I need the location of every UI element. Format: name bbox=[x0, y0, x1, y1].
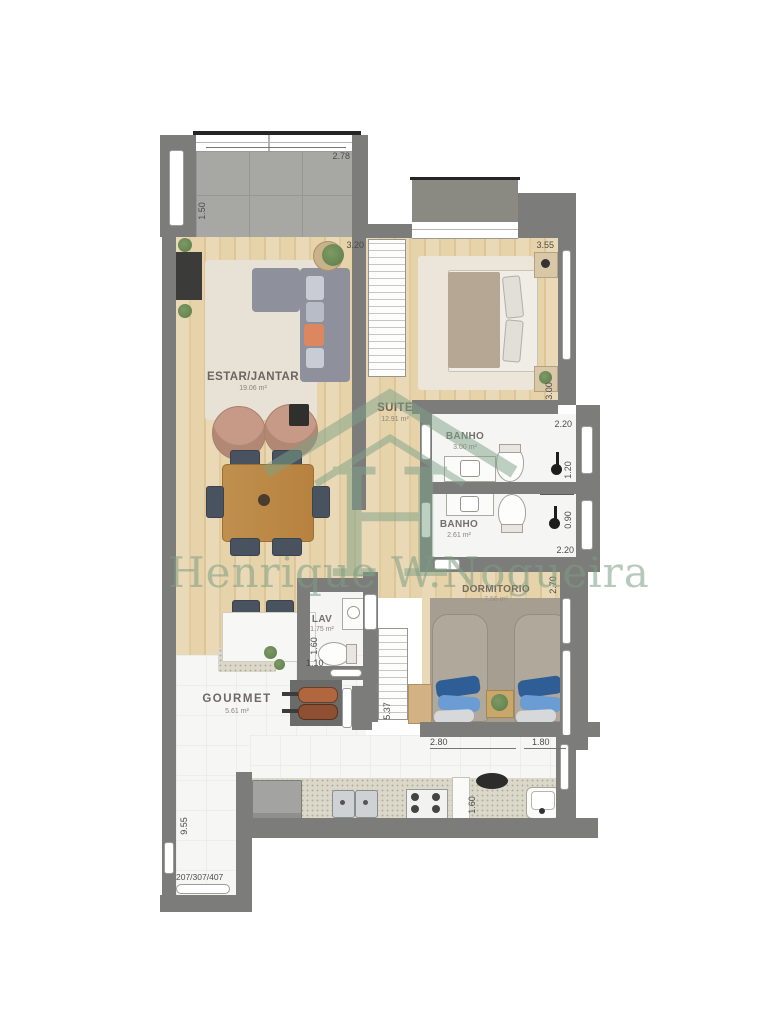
wall-living-suite bbox=[352, 237, 366, 510]
shower-icon bbox=[549, 518, 560, 529]
closet-panel bbox=[408, 684, 432, 724]
wall bbox=[518, 193, 558, 238]
wall-bottom-left bbox=[160, 895, 252, 912]
side-table bbox=[289, 404, 309, 426]
room-label-bath2: BANHO bbox=[426, 519, 492, 530]
room-area-lav: 1.75 m² bbox=[300, 626, 344, 633]
dining-chair bbox=[312, 486, 330, 518]
wall bbox=[352, 135, 368, 237]
window-mullion bbox=[412, 229, 518, 230]
dim-line bbox=[524, 748, 566, 749]
kitchen-window bbox=[560, 744, 569, 790]
sink-basin bbox=[347, 606, 360, 619]
wall-suite-bottom bbox=[412, 400, 558, 414]
unit-numbers: 207/307/407 bbox=[176, 872, 236, 882]
burner-icon bbox=[411, 793, 419, 801]
wall-service bbox=[236, 772, 252, 897]
bath-window bbox=[581, 500, 593, 550]
drain-icon bbox=[363, 800, 368, 805]
door-opening bbox=[342, 688, 352, 728]
suite-bed-blanket bbox=[448, 272, 500, 368]
dim-suite-depth: 3.00 bbox=[543, 371, 555, 411]
lav-window bbox=[330, 669, 362, 677]
side-window bbox=[562, 250, 571, 360]
suite-wardrobe bbox=[368, 239, 406, 377]
sink-basin bbox=[460, 460, 480, 477]
wall bbox=[352, 686, 372, 730]
dim-closet-run: 5.37 bbox=[381, 691, 393, 731]
plant-icon bbox=[491, 694, 508, 711]
dim-bath1-width: 2.20 bbox=[536, 419, 572, 429]
floor-plan: 2.78 1.50 3.20 3.55 3.00 2.20 1.20 0.90 … bbox=[0, 0, 767, 1024]
terrace-window bbox=[196, 135, 352, 152]
sofa-cushion-orange bbox=[304, 324, 324, 346]
pillow bbox=[502, 319, 524, 362]
service-opening bbox=[176, 884, 230, 894]
burner-icon bbox=[432, 805, 440, 813]
bedroom-window bbox=[562, 650, 571, 736]
refrigerator bbox=[252, 780, 302, 820]
drain-icon bbox=[340, 800, 345, 805]
room-area-suite: 12.91 m² bbox=[362, 416, 428, 423]
room-label-suite: SUITE bbox=[362, 402, 428, 414]
tub-basin bbox=[531, 791, 555, 810]
kitchen-floor bbox=[250, 735, 556, 780]
room-label-lav: LAV bbox=[300, 614, 344, 625]
dim-bath1-depth: 1.20 bbox=[562, 450, 574, 490]
burner-icon bbox=[432, 793, 440, 801]
room-area-living: 19.06 m² bbox=[193, 385, 313, 392]
dim-terrace-width: 2.78 bbox=[306, 151, 350, 161]
tap-icon bbox=[539, 808, 545, 814]
wall-kitchen-bottom bbox=[236, 818, 598, 838]
plant-icon bbox=[264, 646, 277, 659]
door-opening bbox=[421, 424, 431, 460]
bowl bbox=[476, 773, 508, 789]
burner-icon bbox=[411, 805, 419, 813]
tv-panel bbox=[176, 252, 202, 300]
door-opening bbox=[364, 594, 377, 630]
dim-suite-width: 3.55 bbox=[512, 240, 554, 250]
room-area-gourmet: 5.61 m² bbox=[180, 708, 294, 715]
lamp-icon bbox=[541, 259, 550, 268]
dim-bedroom-width-a: 2.80 bbox=[430, 737, 470, 747]
plant-icon bbox=[178, 238, 192, 252]
sofa-cushion bbox=[306, 276, 324, 300]
dim-line bbox=[206, 147, 346, 148]
plant-icon bbox=[178, 304, 192, 318]
bath-window bbox=[581, 426, 593, 474]
room-area-bedroom: 7.56 m² bbox=[438, 596, 554, 603]
sofa-cushion bbox=[306, 348, 324, 368]
room-area-bath1: 3.00 m² bbox=[432, 444, 498, 451]
suite-balcony-slab bbox=[412, 180, 518, 224]
bedroom-window bbox=[562, 598, 571, 644]
window-mullion bbox=[268, 135, 270, 151]
wall-bath-divider bbox=[432, 482, 577, 494]
terrace-floor bbox=[196, 151, 352, 237]
wall bbox=[352, 224, 412, 238]
dim-line bbox=[430, 748, 516, 749]
toilet-tank bbox=[346, 644, 357, 664]
window-mullion bbox=[196, 142, 352, 143]
table-centerpiece bbox=[258, 494, 270, 506]
toilet-tank bbox=[501, 524, 523, 533]
sofa-cushion bbox=[306, 302, 324, 322]
room-area-bath2: 2.61 m² bbox=[426, 532, 492, 539]
shower-icon bbox=[551, 464, 562, 475]
dim-living-width: 3.20 bbox=[322, 240, 364, 250]
side-window bbox=[164, 842, 174, 874]
sofa-chaise bbox=[252, 268, 300, 312]
dim-terrace-depth: 1.50 bbox=[196, 191, 208, 231]
room-label-bath1: BANHO bbox=[432, 431, 498, 442]
toilet-tank bbox=[499, 444, 521, 453]
plant-icon bbox=[274, 659, 285, 670]
dining-chair bbox=[206, 486, 224, 518]
grill-skewer bbox=[298, 687, 338, 703]
sink-basin bbox=[460, 496, 479, 512]
room-label-living: ESTAR/JANTAR bbox=[193, 371, 313, 383]
side-window bbox=[169, 150, 184, 226]
suite-window bbox=[412, 222, 518, 239]
watermark-name: Henrique W.Nogueira bbox=[168, 548, 650, 597]
dim-kitchen-depth: 1.60 bbox=[466, 785, 478, 825]
dim-lav-width: 1.10 bbox=[306, 658, 336, 668]
grill-skewer bbox=[298, 704, 338, 720]
dim-side-total: 9.55 bbox=[178, 806, 190, 846]
dim-bath2-depth: 0.90 bbox=[562, 500, 574, 540]
room-label-gourmet: GOURMET bbox=[180, 693, 294, 705]
dim-bedroom-width-b: 1.80 bbox=[532, 737, 568, 747]
